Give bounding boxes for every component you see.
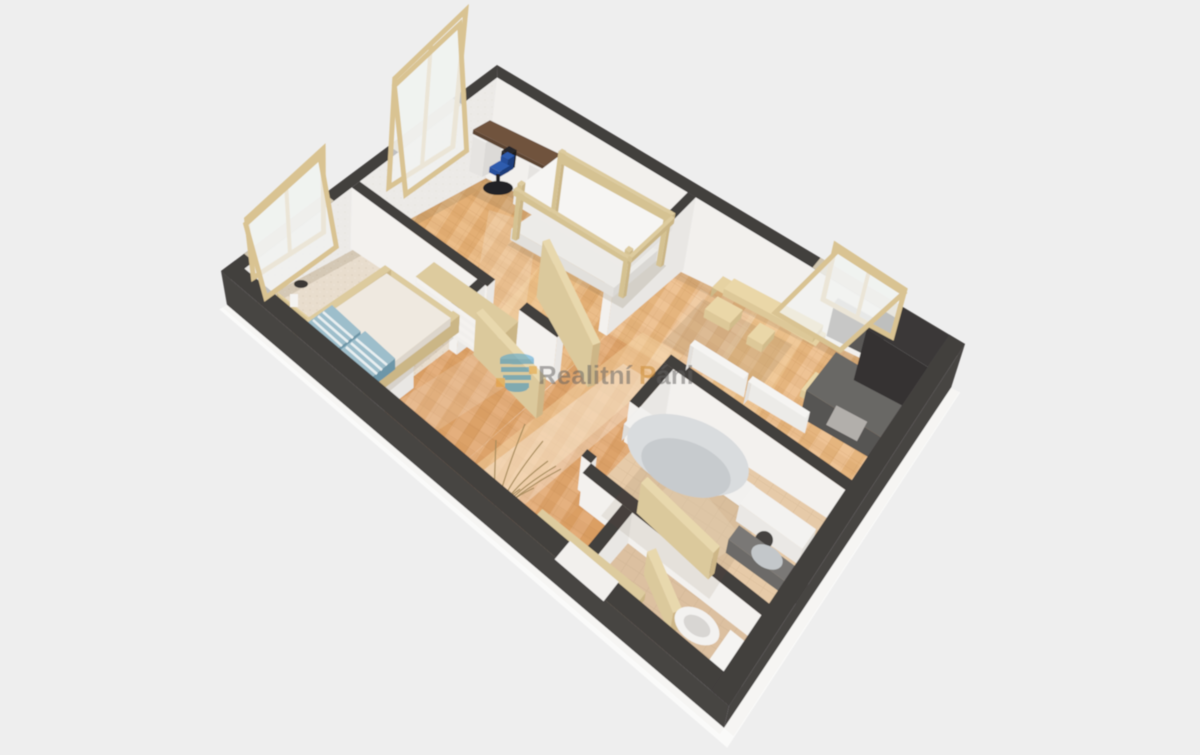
svg-text:RealitníPáni: RealitníPáni	[538, 360, 694, 390]
